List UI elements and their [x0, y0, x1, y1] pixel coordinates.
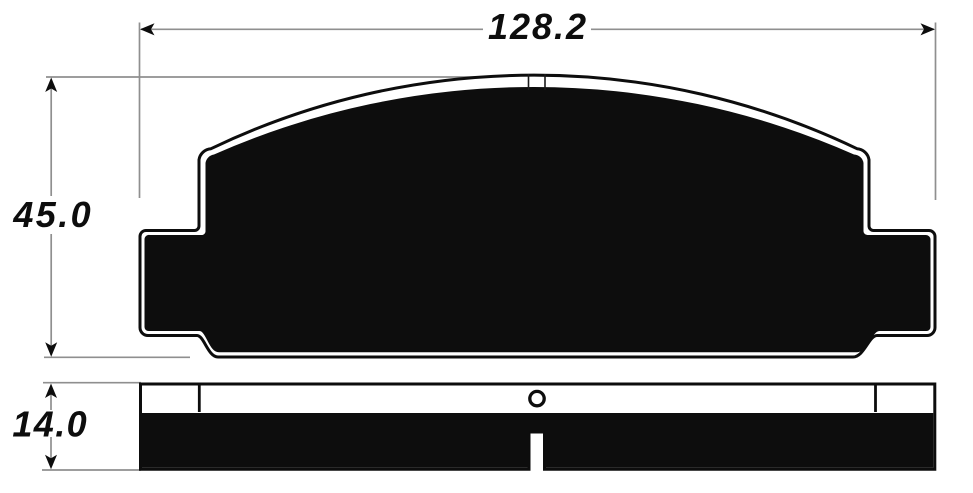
svg-text:128.2: 128.2 — [488, 6, 588, 47]
svg-text:14.0: 14.0 — [12, 404, 88, 445]
svg-text:45.0: 45.0 — [12, 194, 93, 235]
